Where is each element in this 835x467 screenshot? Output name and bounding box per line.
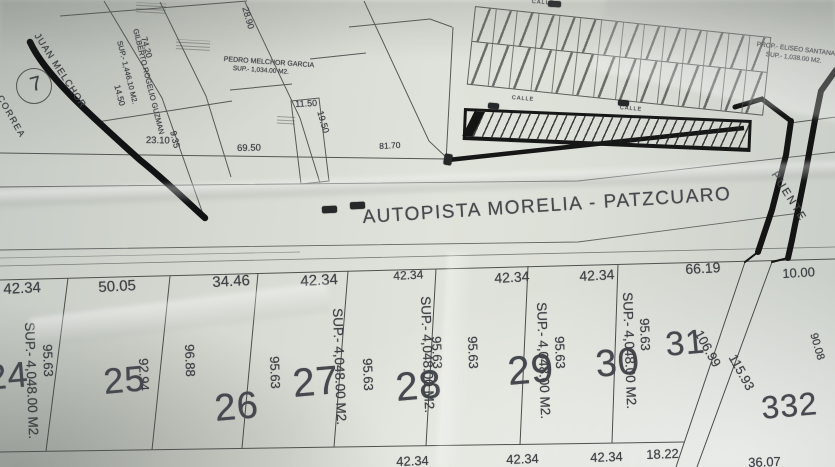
dimension-label: 69.50: [237, 144, 261, 154]
lot-side-dimension: 95.63: [553, 336, 567, 369]
hatched-strip-cap: [462, 111, 484, 136]
lot-top-dimension: 10.00: [782, 265, 815, 280]
microtext-block: [176, 39, 210, 51]
lot-top-dimension: 34.46: [212, 273, 250, 290]
dimension-label: 11.50: [295, 99, 317, 109]
lot-bottom-dimension: 42.34: [396, 454, 429, 467]
dimension-label: 23.10: [146, 136, 170, 146]
lot-number: 25: [102, 360, 147, 400]
cadastral-plan-photo: CALLE CALLE CALLE AUTOPISTA MORELIA - PA…: [0, 0, 835, 467]
microtext-block: [136, 2, 166, 14]
car-icon: [488, 103, 499, 110]
lot-bottom-dimension: 36.07: [748, 455, 781, 467]
lot-side-dimension: 95.63: [268, 356, 282, 389]
lot-side-dimension: 95.63: [361, 358, 375, 391]
lot-side-dimension: 95.63: [638, 318, 652, 351]
lot-surface-label: SUP.- 4,048.00 M2.: [535, 302, 553, 419]
lot-surface-label: SUP.- 4,048.00 M2.: [419, 296, 437, 413]
landmark-circle: 7: [16, 68, 52, 104]
car-icon: [618, 100, 629, 107]
lot-bottom-dimension: 42.34: [506, 452, 539, 466]
car-icon: [548, 1, 561, 8]
lot-top-dimension: 42.34: [300, 272, 338, 289]
lot-top-dimension: 50.05: [98, 278, 136, 295]
lot-top-dimension: 42.34: [3, 280, 41, 297]
lot-side-dimension: 96.88: [183, 344, 197, 377]
lot-bottom-dimension: 18.22: [646, 447, 679, 461]
dimension-label: 81.70: [379, 141, 401, 151]
lot-surface-label: SUP.- 4,048.00 M2.: [23, 322, 41, 439]
landmark-circle-number: 7: [28, 73, 44, 95]
lot-number: 332: [760, 387, 819, 424]
lot-top-dimension: 42.34: [579, 267, 615, 283]
lot-side-dimension: 95.63: [466, 336, 480, 369]
lot-surface-label: SUP.- 4,048.00 M2.: [621, 292, 639, 409]
lot-number: 26: [213, 386, 260, 428]
lot-bottom-dimension: 42.34: [590, 450, 623, 464]
car-icon: [322, 206, 337, 214]
lot-top-dimension: 42.34: [494, 269, 530, 285]
lot-top-dimension: 66.19: [685, 260, 721, 276]
parcel-lines: [60, 1, 453, 214]
lot-top-dimension: 42.34: [393, 268, 424, 282]
lot-side-dimension: 95.63: [41, 344, 55, 377]
lot-surface-label: SUP.- 4,048.00 M2.: [331, 308, 349, 425]
subdivision-lot-cell: [742, 71, 766, 115]
microtext-block: [277, 116, 295, 125]
